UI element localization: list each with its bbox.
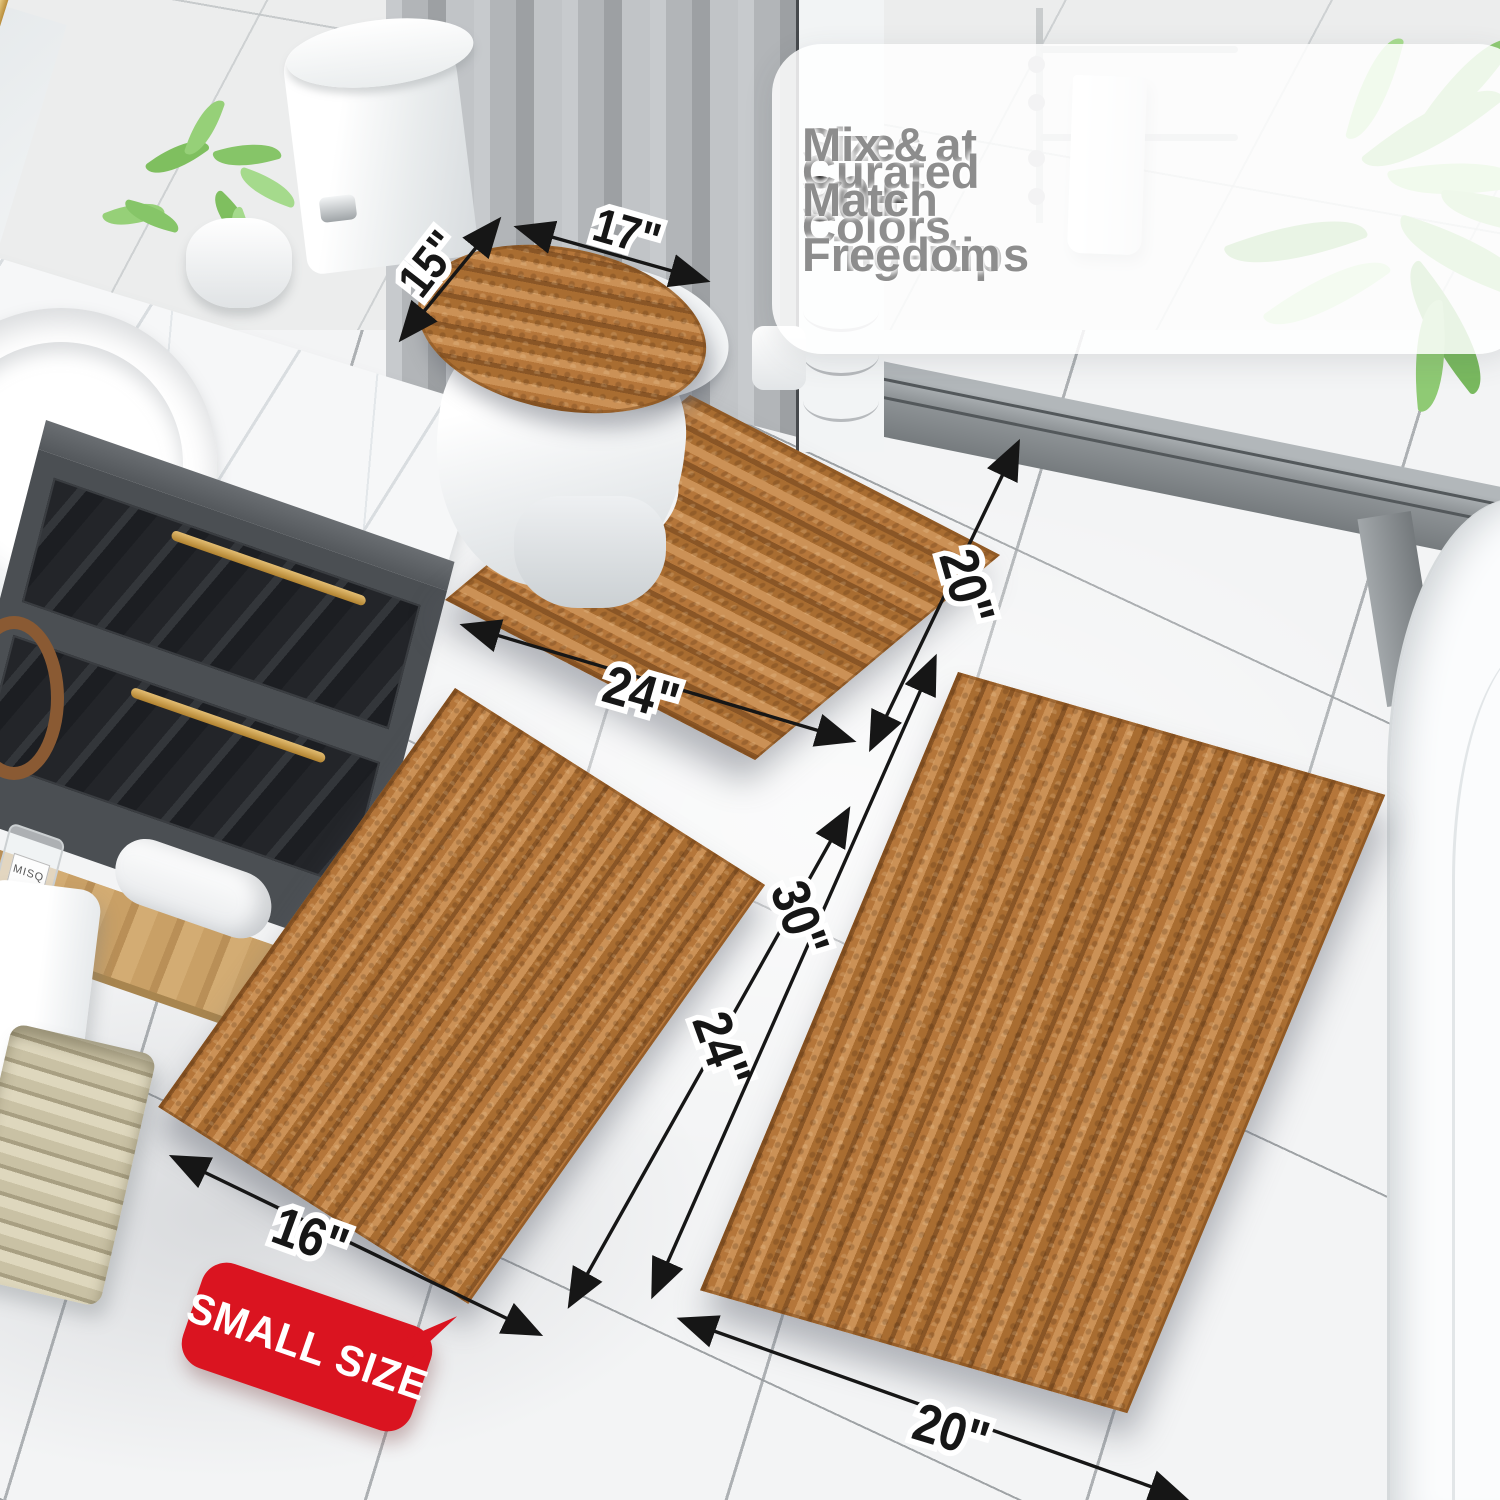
toilet-flush-lever <box>319 194 358 223</box>
plant-pot <box>186 218 292 308</box>
info-panel: ✓ 20+ Sizes at Your Fingertips ✓ 30+ Cur… <box>772 44 1500 354</box>
liner-wave-stripe <box>803 380 879 422</box>
product-image: MISQ 15" 17" 24" <box>0 0 1500 1500</box>
toilet-pedestal <box>514 496 666 608</box>
feature-label: Mix & Match Freedom <box>802 117 1000 282</box>
